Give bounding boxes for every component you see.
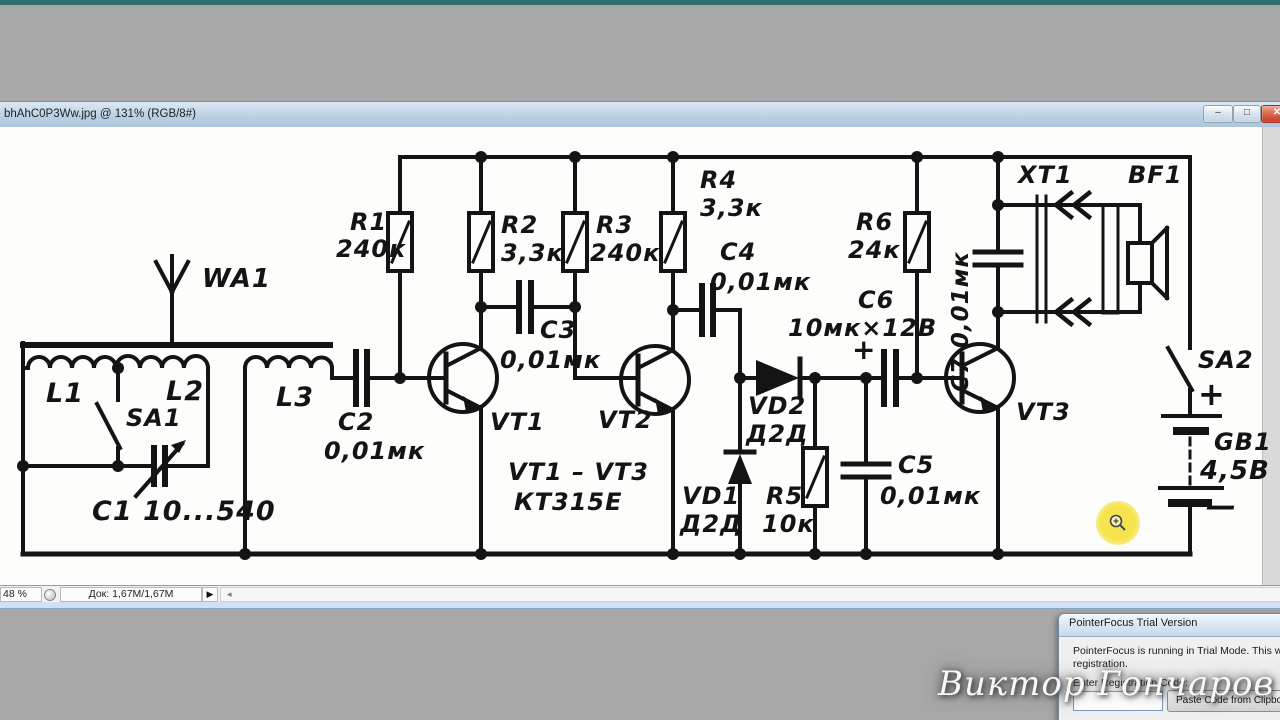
watermark-text: Виктор Гончаров UA9UKI: [938, 664, 1280, 704]
label-gb1-val: 4,5В: [1200, 458, 1270, 484]
label-l2: L2: [166, 378, 204, 405]
label-c5-ref: С5: [898, 453, 934, 477]
label-xt1: XT1: [1018, 163, 1073, 187]
label-r6-val: 24к: [848, 238, 901, 262]
label-vt-group-2: КТ315Е: [514, 490, 622, 514]
label-vt-group-1: VT1 – VT3: [508, 460, 649, 484]
label-r5-val: 10к: [762, 512, 815, 536]
desktop-band: [0, 5, 1280, 102]
label-c4-val: 0,01мк: [710, 270, 811, 294]
label-gb1-ref: GB1: [1214, 430, 1272, 454]
close-button[interactable]: ✕: [1261, 105, 1280, 123]
label-sa2: SA2: [1198, 348, 1254, 372]
label-vd1-ref: VD1: [682, 484, 740, 508]
window-title: bhAhC0P3Ww.jpg @ 131% (RGB/8#): [4, 108, 196, 120]
label-r4-ref: R4: [700, 168, 737, 192]
zoom-level-field[interactable]: 48 %: [0, 587, 42, 602]
label-r1-ref: R1: [350, 210, 387, 234]
label-c1: С1 10...540: [92, 498, 276, 525]
label-c7: С7 0,01мк: [950, 251, 973, 392]
label-r5-ref: R5: [766, 484, 803, 508]
label-l1: L1: [46, 380, 84, 407]
label-vd2-ref: VD2: [748, 394, 806, 418]
status-menu-arrow[interactable]: ▶: [202, 587, 218, 602]
image-window-titlebar: bhAhC0P3Ww.jpg @ 131% (RGB/8#) – □ ✕: [0, 102, 1280, 128]
pointerfocus-titlebar[interactable]: PointerFocus Trial Version: [1059, 614, 1280, 637]
label-c2-val: 0,01мк: [324, 439, 425, 463]
label-vd2-val: Д2Д: [746, 422, 808, 446]
label-wa1: WA1: [202, 266, 271, 292]
label-r6-ref: R6: [856, 210, 893, 234]
horizontal-scrollbar[interactable]: ◂: [220, 587, 1280, 602]
label-c6-plus: +: [852, 336, 876, 364]
canvas-edge-strip: [1262, 127, 1280, 585]
label-c6-ref: С6: [858, 288, 894, 312]
status-clock-icon: [44, 589, 56, 601]
label-vt2: VT2: [598, 408, 653, 432]
restore-button[interactable]: □: [1233, 105, 1261, 123]
document-size-field: Док: 1,67M/1,67M: [60, 587, 202, 602]
screen: bhAhC0P3Ww.jpg @ 131% (RGB/8#) – □ ✕: [0, 0, 1280, 720]
label-vt1: VT1: [490, 410, 545, 434]
label-r3-ref: R3: [596, 213, 633, 237]
label-gb1-plus: +: [1198, 378, 1226, 410]
status-bar: 48 % Док: 1,67M/1,67M ▶ ◂: [0, 585, 1280, 602]
label-vt3: VT3: [1016, 400, 1071, 424]
label-r4-val: 3,3к: [700, 196, 763, 220]
label-r1-val: 240к: [336, 237, 406, 261]
label-r3-val: 240к: [590, 241, 660, 265]
pointer-highlight: [1096, 501, 1140, 545]
label-c4-ref: С4: [720, 240, 756, 264]
label-c2-ref: С2: [338, 410, 374, 434]
label-sa1: SA1: [126, 406, 182, 430]
label-bf1: BF1: [1128, 163, 1182, 187]
label-vd1-val: Д2Д: [680, 512, 742, 536]
label-c3-val: 0,01мк: [500, 348, 601, 372]
label-c3-ref: С3: [540, 318, 576, 342]
label-r2-val: 3,3к: [501, 241, 564, 265]
minimize-button[interactable]: –: [1203, 105, 1233, 123]
label-r2-ref: R2: [501, 213, 538, 237]
label-c5-val: 0,01мк: [880, 484, 981, 508]
zoom-tool-cursor-icon: [1108, 513, 1128, 533]
label-l3: L3: [276, 384, 314, 411]
trial-message-line1: PointerFocus is running in Trial Mode. T…: [1073, 645, 1280, 657]
scroll-left-icon[interactable]: ◂: [227, 589, 232, 599]
label-gb1-minus: —: [1206, 492, 1237, 522]
pointerfocus-title: PointerFocus Trial Version: [1069, 617, 1197, 629]
window-bottom-edge: [0, 602, 1280, 609]
